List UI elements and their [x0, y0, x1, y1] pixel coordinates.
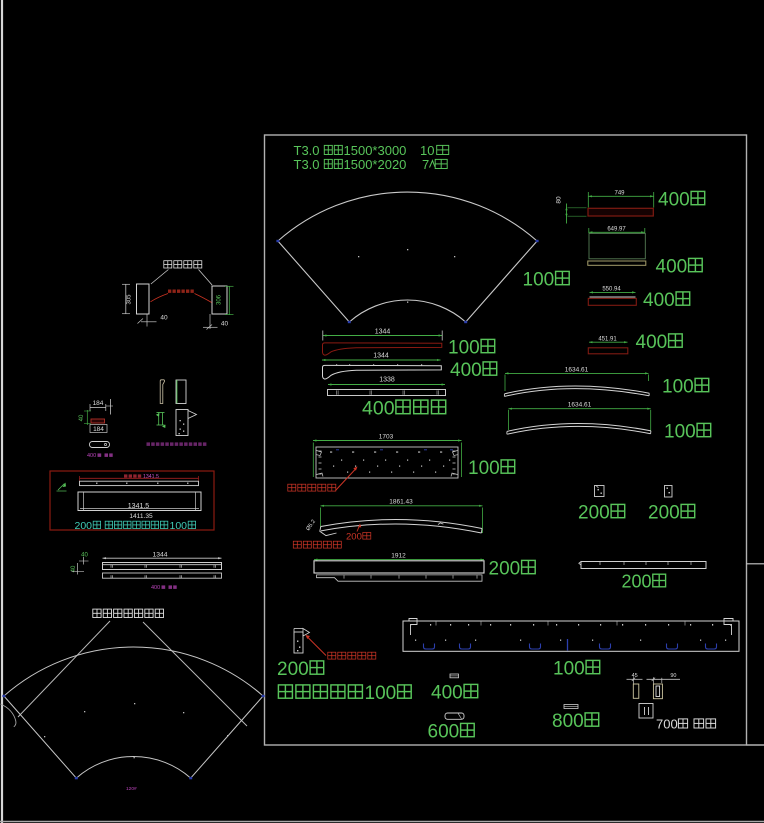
svg-text:184: 184 [93, 400, 104, 407]
svg-text:100: 100 [468, 458, 500, 479]
svg-text:7: 7 [422, 157, 429, 172]
svg-text:1341.5: 1341.5 [143, 474, 159, 480]
svg-text:T3.0: T3.0 [294, 157, 320, 172]
svg-text:400: 400 [87, 453, 96, 459]
svg-text:100: 100 [664, 422, 696, 443]
svg-text:1341.5: 1341.5 [128, 503, 150, 510]
svg-text:1411.35: 1411.35 [129, 513, 153, 520]
svg-text:200: 200 [489, 559, 521, 580]
svg-text:400: 400 [643, 290, 675, 311]
svg-text:100: 100 [170, 520, 188, 532]
svg-text:80: 80 [556, 196, 563, 204]
svg-text:1703: 1703 [379, 434, 394, 441]
svg-text:120#: 120# [126, 786, 137, 792]
svg-text:100: 100 [553, 659, 585, 680]
svg-text:200: 200 [75, 520, 93, 532]
svg-text:100: 100 [448, 338, 480, 359]
svg-text:200: 200 [346, 532, 362, 543]
svg-text:400: 400 [450, 360, 482, 381]
svg-text:184: 184 [93, 426, 104, 433]
svg-text:1338: 1338 [379, 377, 395, 384]
svg-text:550.94: 550.94 [602, 287, 621, 293]
svg-text:305: 305 [127, 294, 133, 305]
svg-text:451.91: 451.91 [598, 336, 617, 342]
svg-text:100: 100 [523, 270, 555, 291]
svg-text:749: 749 [614, 190, 625, 196]
svg-text:1634.61: 1634.61 [565, 366, 589, 373]
svg-text:1344: 1344 [152, 552, 167, 559]
svg-text:40: 40 [221, 320, 229, 327]
svg-text:T3.0: T3.0 [294, 143, 320, 158]
svg-text:1344: 1344 [375, 329, 391, 336]
svg-text:10: 10 [420, 143, 434, 158]
svg-text:306: 306 [217, 294, 223, 305]
svg-text:1500*3000: 1500*3000 [344, 143, 407, 158]
svg-text:200: 200 [277, 659, 309, 680]
svg-text:1912: 1912 [391, 553, 406, 560]
svg-text:200: 200 [648, 503, 680, 524]
svg-text:1861.43: 1861.43 [389, 499, 413, 506]
svg-text:800: 800 [552, 711, 584, 732]
svg-text:400: 400 [656, 257, 688, 278]
svg-text:700: 700 [656, 717, 678, 732]
svg-text:600: 600 [428, 722, 460, 743]
svg-text:100: 100 [365, 683, 397, 704]
svg-text:40: 40 [81, 552, 88, 558]
svg-text:1344: 1344 [373, 353, 389, 360]
svg-text:400: 400 [658, 190, 690, 211]
svg-text:649.97: 649.97 [607, 226, 626, 232]
svg-text:100: 100 [662, 377, 694, 398]
svg-text:1500*2020: 1500*2020 [344, 157, 407, 172]
svg-text:200: 200 [578, 503, 610, 524]
svg-text:1634.61: 1634.61 [568, 401, 592, 408]
svg-text:200: 200 [622, 572, 652, 592]
svg-text:40: 40 [160, 315, 168, 322]
svg-text:400: 400 [362, 398, 395, 420]
svg-text:40: 40 [79, 414, 85, 421]
svg-text:90: 90 [670, 673, 676, 679]
svg-text:400: 400 [151, 585, 160, 591]
svg-text:400: 400 [431, 683, 463, 704]
svg-text:400: 400 [636, 332, 668, 353]
